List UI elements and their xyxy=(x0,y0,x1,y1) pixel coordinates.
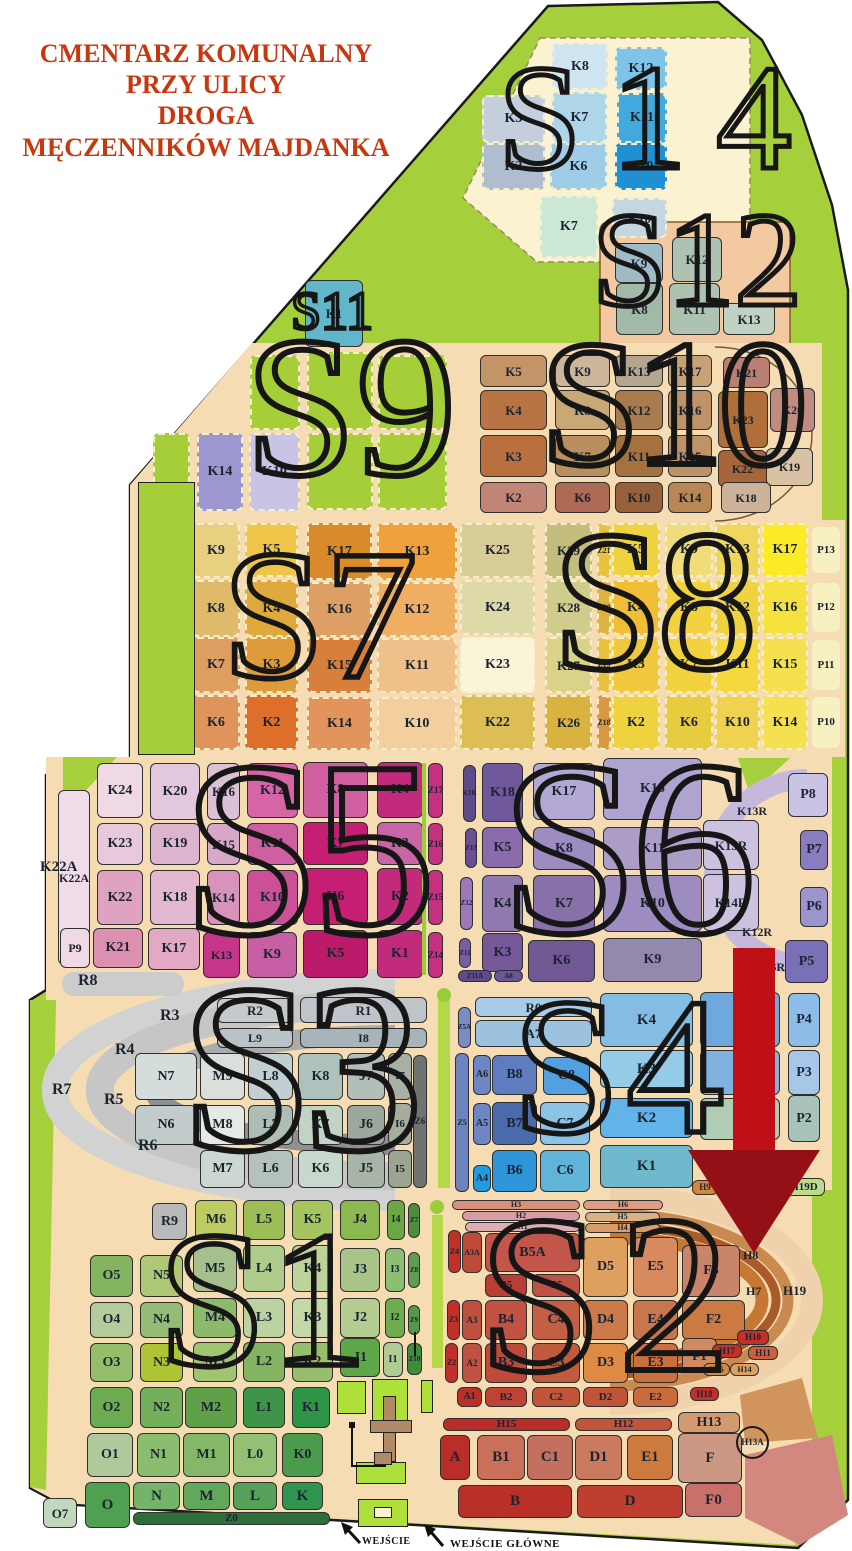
section-label-s4: S4 xyxy=(512,988,730,1148)
entrance-main-arrow-icon xyxy=(431,1532,443,1546)
section-label-s9: S9 xyxy=(245,326,456,490)
map-title-line3: DROGA xyxy=(0,100,412,131)
section-label-s3: S3 xyxy=(180,970,413,1167)
entrance-arrow-icon xyxy=(348,1530,360,1543)
section-label-s2: S2 xyxy=(478,1202,746,1387)
section-label-s7: S7 xyxy=(222,540,417,692)
map-title-line4: MĘCZENNIKÓW MAJDANKA xyxy=(0,132,412,163)
map-title-line1: CMENTARZ KOMUNALNY xyxy=(0,38,412,69)
section-label-s6: S6 xyxy=(500,746,748,951)
section-label-s5: S5 xyxy=(182,747,426,952)
section-label-s14: S14 xyxy=(498,57,821,180)
section-label-s12: S12 xyxy=(592,206,802,317)
entrance-main-label: WEJŚCIE GŁÓWNE xyxy=(450,1538,560,1550)
entrance-label: WEJŚCIE xyxy=(362,1536,411,1547)
cemetery-map: K8K12K3K7K11K2K6K10K7K10K9K12K8K11K13K1K… xyxy=(0,0,852,1551)
section-label-s1: S1 xyxy=(158,1221,372,1381)
section-label-s10: S10 xyxy=(540,330,802,478)
map-title: CMENTARZ KOMUNALNY PRZY ULICY DROGA MĘCZ… xyxy=(0,38,412,163)
section-label-s8: S8 xyxy=(552,520,751,684)
map-title-line2: PRZY ULICY xyxy=(0,69,412,100)
path-node xyxy=(349,1422,355,1428)
